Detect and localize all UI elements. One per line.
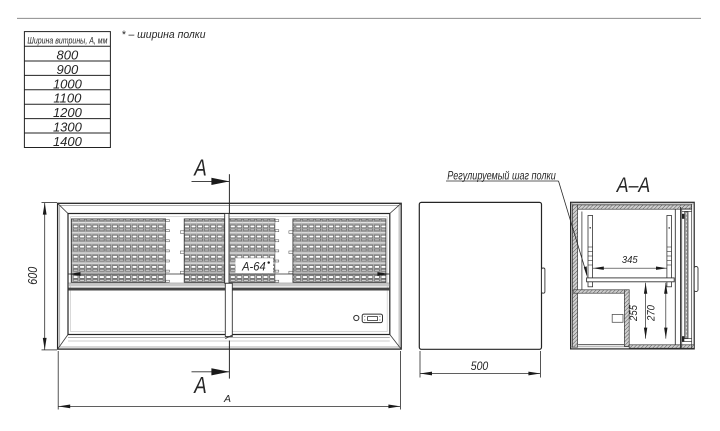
svg-text:А-64: А-64 — [241, 259, 266, 273]
svg-text:255: 255 — [628, 304, 640, 322]
svg-text:1000: 1000 — [53, 76, 83, 91]
svg-text:1300: 1300 — [53, 120, 83, 135]
svg-text:Регулируемый шаг полки: Регулируемый шаг полки — [447, 170, 556, 182]
svg-text:* – ширина полки: * – ширина полки — [122, 29, 206, 41]
svg-text:А–А: А–А — [615, 174, 650, 197]
svg-text:270: 270 — [646, 304, 658, 322]
svg-text:А: А — [193, 372, 207, 398]
svg-text:А: А — [223, 393, 231, 405]
svg-text:1100: 1100 — [53, 91, 82, 106]
svg-text:600: 600 — [26, 267, 40, 285]
svg-text:500: 500 — [471, 361, 489, 373]
svg-text:345: 345 — [622, 254, 638, 266]
svg-text:Ширина витрины, А, мм: Ширина витрины, А, мм — [27, 35, 107, 45]
svg-text:900: 900 — [57, 62, 79, 77]
svg-text:А: А — [193, 155, 207, 181]
svg-text:800: 800 — [57, 48, 79, 63]
svg-text:1200: 1200 — [53, 105, 83, 120]
svg-text:1400: 1400 — [53, 134, 83, 149]
